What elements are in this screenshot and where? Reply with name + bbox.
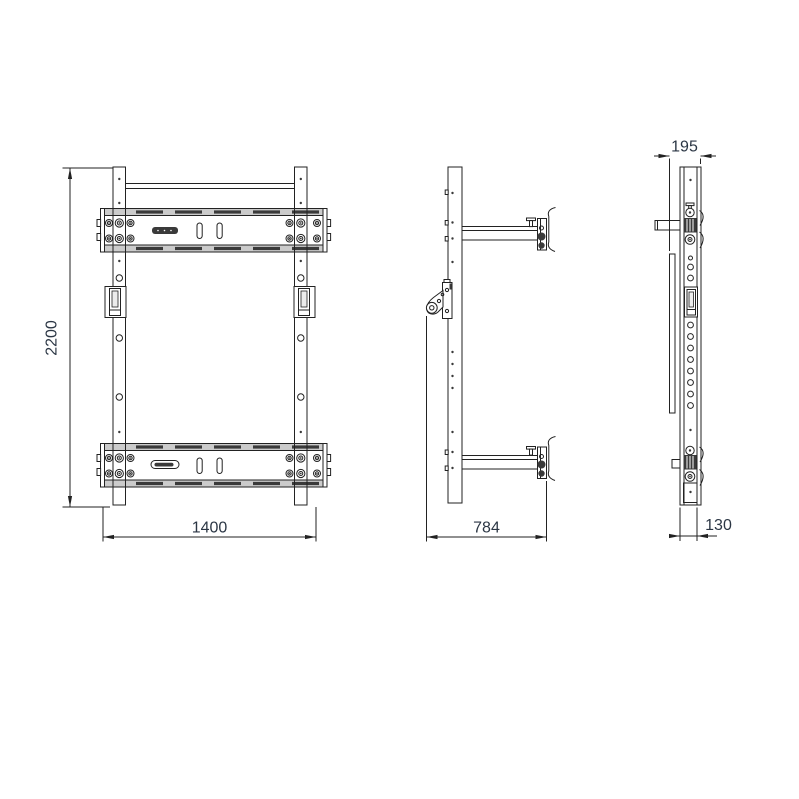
dimension-width: 1400 [103,507,316,542]
panel-break-line [548,437,555,481]
arrowhead-left [427,535,438,539]
arrowhead-down [68,496,72,507]
top-rail-assembly [97,209,331,253]
front-view: 2200 1400 [44,167,331,542]
dimension-label-depth: 784 [473,520,500,537]
arrowhead-right [669,534,680,538]
arrowhead-left [701,154,712,158]
arrowhead-left [697,534,708,538]
side-view: 784 [426,167,555,542]
dimension-label-height: 2200 [44,320,61,356]
bottom-support-arm [462,437,556,481]
dimension-label-width: 1400 [192,520,228,537]
dimension-depth: 784 [427,316,547,542]
arrowhead-right [536,535,547,539]
technical-drawing-canvas: 2200 1400 [0,0,799,799]
profile-view: 195 130 [654,139,732,542]
arrowhead-right [305,535,316,539]
panel-break-line [548,208,555,252]
label-plate [151,461,179,469]
dimension-bottom-depth: 130 [669,508,732,542]
arrowhead-right [659,154,670,158]
dimension-label-bottom-depth: 130 [705,517,732,534]
side-rail [448,167,462,503]
wall-mount-drawing: 2200 1400 [0,0,799,799]
top-support-arm [462,208,556,252]
arrowhead-up [68,168,72,179]
profile-latch-clip [685,287,698,317]
wall-plate-profile [670,254,676,413]
tilt-bracket [426,280,452,319]
dimension-label-top-depth: 195 [671,139,698,156]
left-latch-clip [105,287,126,318]
bottom-rail-assembly [97,444,331,488]
arrowhead-left [103,535,114,539]
right-latch-clip [294,287,315,318]
